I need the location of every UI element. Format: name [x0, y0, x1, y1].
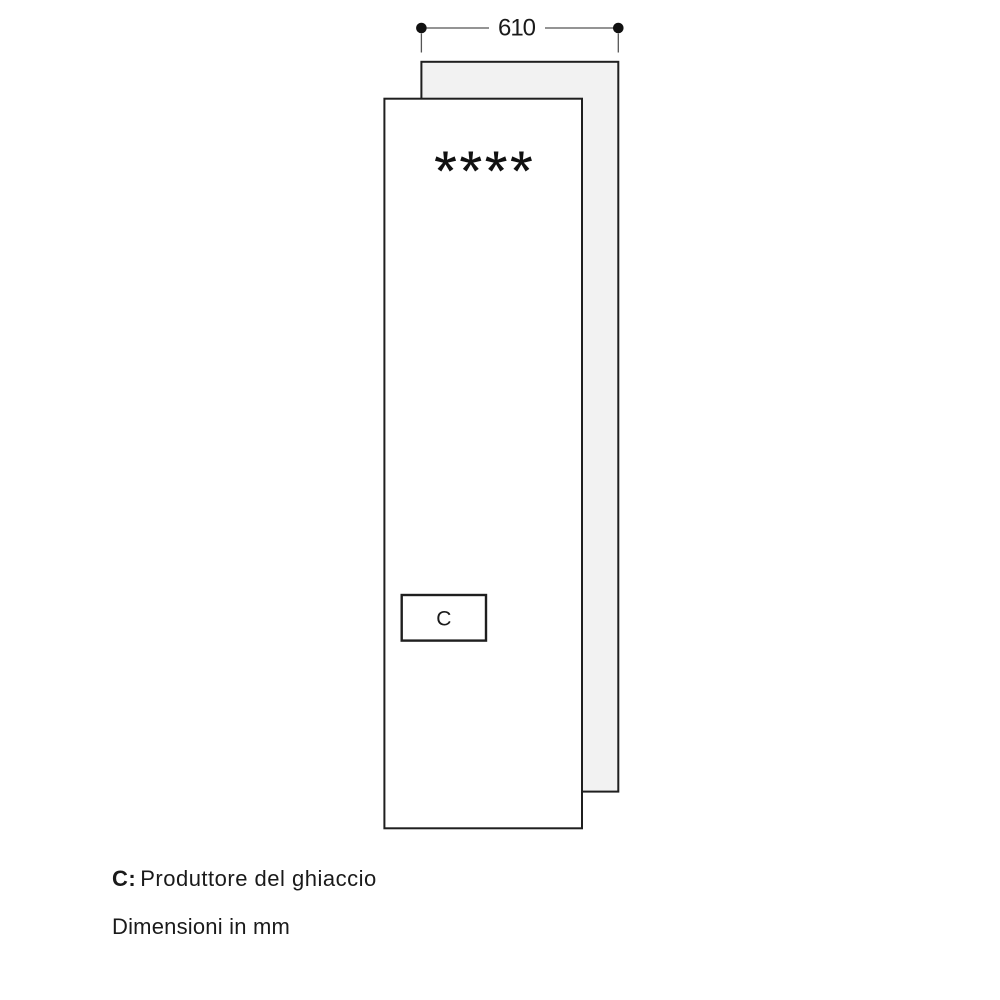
svg-text:C: C: [436, 608, 451, 631]
svg-text:610: 610: [498, 15, 536, 42]
